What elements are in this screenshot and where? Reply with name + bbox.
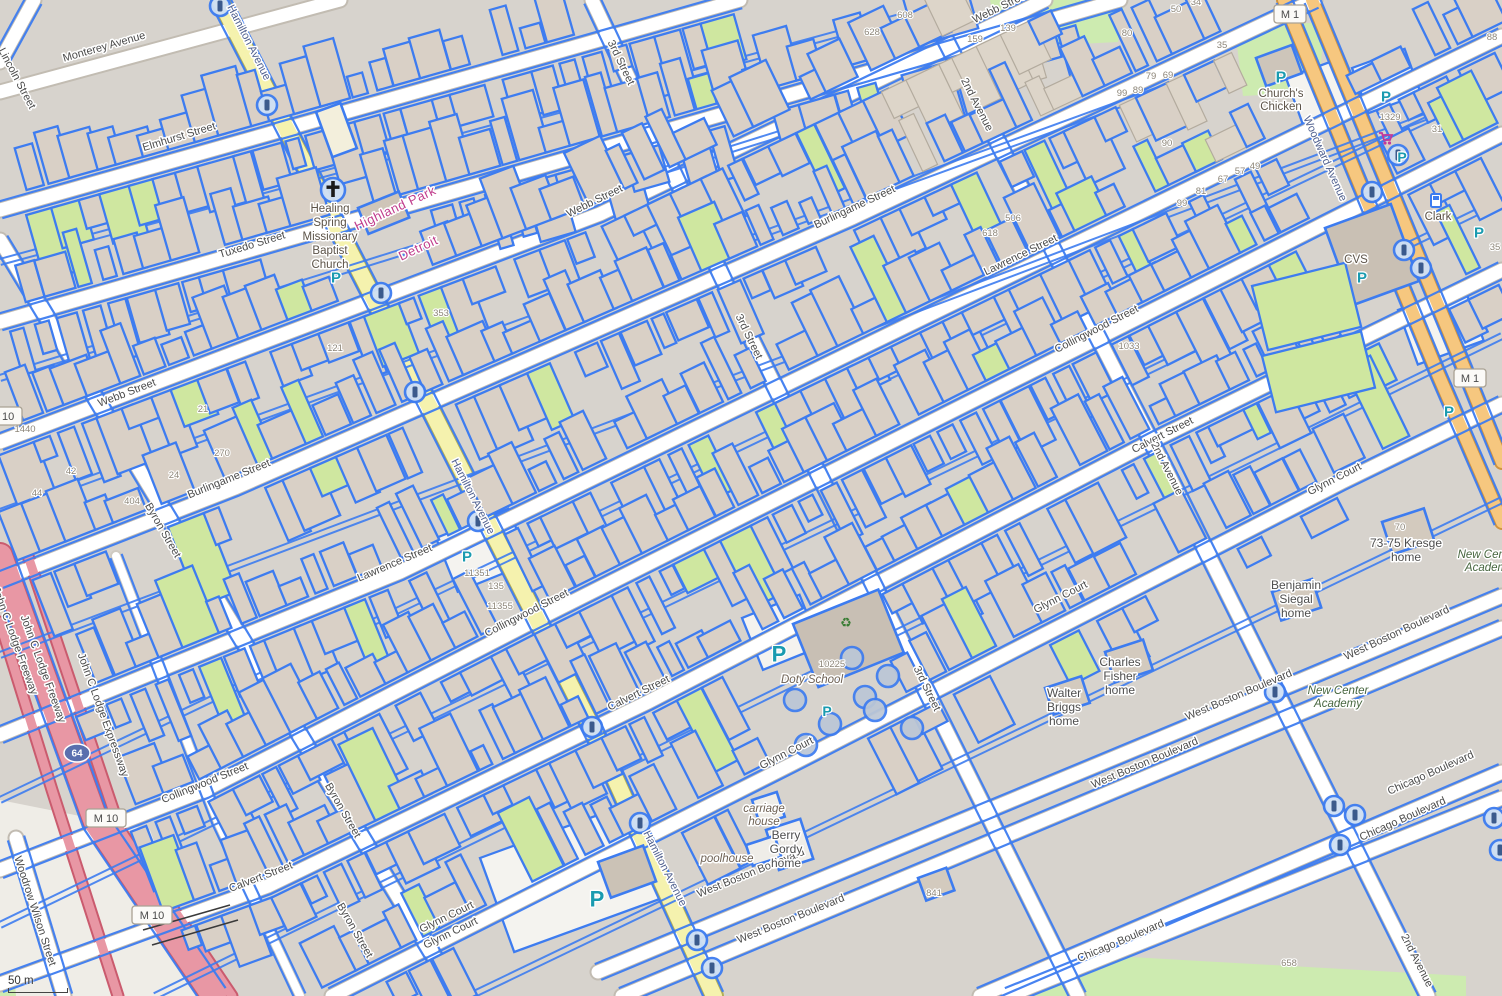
traffic-signal-icon[interactable] xyxy=(1362,182,1382,202)
route-shield-m1: M 1 xyxy=(1454,369,1486,387)
poi-label-poolhouse: poolhouse xyxy=(699,853,753,865)
housenumber: 10225 xyxy=(819,659,845,670)
badge-text: 64 xyxy=(71,749,83,760)
housenumber: 67 xyxy=(1218,174,1229,185)
traffic-signal-icon[interactable] xyxy=(582,717,602,737)
parking-icon[interactable]: P xyxy=(462,548,472,565)
map-canvas[interactable]: ♻PPPPPPPPPPPMonterey AvenueLincoln Stree… xyxy=(0,0,1502,996)
housenumber: 506 xyxy=(1005,213,1021,224)
tree-icon[interactable] xyxy=(901,717,923,739)
tree-icon[interactable] xyxy=(864,699,886,721)
poi-label-healing-spring-missionary-baptist-church: Baptist xyxy=(312,245,348,257)
housenumber: 24 xyxy=(169,470,180,481)
tree-icon[interactable] xyxy=(877,665,899,687)
signal-glyph xyxy=(710,963,715,974)
housenumber: 42 xyxy=(66,466,77,477)
poi-label-73-75-kresge-home: 73-75 Kresge xyxy=(1370,536,1442,550)
housenumber: 270 xyxy=(214,448,230,459)
poi-label-carriage-house: carriage xyxy=(743,803,785,815)
signal-glyph xyxy=(695,935,700,946)
fuel-icon[interactable] xyxy=(1431,194,1441,207)
housenumber: 49 xyxy=(1250,161,1261,172)
scale-line xyxy=(8,988,68,993)
route-shield-m10: M 10 xyxy=(86,809,126,827)
housenumber: 99 xyxy=(1117,88,1128,99)
traffic-signal-icon[interactable] xyxy=(371,283,391,303)
traffic-signal-icon[interactable] xyxy=(1345,805,1365,825)
housenumber: 89 xyxy=(1133,85,1144,96)
housenumber: 34 xyxy=(1191,0,1202,8)
housenumber: 404 xyxy=(124,496,140,507)
recycle-icon[interactable]: ♻ xyxy=(840,615,852,630)
parking-icon[interactable]: P xyxy=(822,703,831,719)
poi-label-cvs: CVS xyxy=(1344,254,1368,266)
traffic-signal-icon[interactable] xyxy=(257,95,277,115)
tree-icon[interactable] xyxy=(784,689,806,711)
traffic-signal-icon[interactable] xyxy=(1324,796,1344,816)
parking-icon[interactable]: P xyxy=(1357,269,1367,286)
housenumber: 1329 xyxy=(1379,112,1400,123)
traffic-signal-icon[interactable] xyxy=(702,958,722,978)
shield-text: M 10 xyxy=(0,411,14,423)
route-shield-m10: M 10 xyxy=(132,906,172,924)
exit-badge-64: 64 xyxy=(64,744,90,762)
poi-label-charles-fisher-home: Charles xyxy=(1099,655,1140,669)
housenumber: 88 xyxy=(1487,32,1498,43)
parking-icon[interactable]: P xyxy=(331,269,341,286)
traffic-signal-icon[interactable] xyxy=(1394,240,1414,260)
route-shield-m1: M 1 xyxy=(1274,5,1306,23)
housenumber: 608 xyxy=(897,10,913,21)
scale-bar: 50 m xyxy=(8,975,68,993)
poi-label-healing-spring-missionary-baptist-church: Church xyxy=(311,259,348,271)
poi-label-healing-spring-missionary-baptist-church: Healing xyxy=(311,203,350,215)
signal-glyph xyxy=(1419,263,1424,274)
housenumber: 31 xyxy=(1432,124,1443,135)
route-shield-m10: M 10 xyxy=(0,407,22,425)
housenumber: 618 xyxy=(982,228,998,239)
poi-label-benjamin-siegal-home: Siegal xyxy=(1279,592,1312,606)
poi-label-benjamin-siegal-home: home xyxy=(1281,606,1311,620)
cross-vertical xyxy=(331,181,335,197)
housenumber: 159 xyxy=(967,34,983,45)
signal-glyph xyxy=(1338,840,1343,851)
traffic-signal-icon[interactable] xyxy=(1490,840,1502,860)
shield-text: M 10 xyxy=(94,813,118,825)
poi-label-clark: Clark xyxy=(1425,211,1452,223)
traffic-signal-icon[interactable] xyxy=(1411,258,1431,278)
poi-label-new-cente-academ: New Cente xyxy=(1458,549,1502,561)
poi-label-walter-briggs-home: Walter xyxy=(1047,686,1081,700)
signal-glyph xyxy=(590,722,595,733)
cart-wheel xyxy=(1388,141,1391,144)
housenumber: 121 xyxy=(327,343,343,354)
poi-label-new-cente-academ: Academ xyxy=(1464,562,1502,574)
map-viewport[interactable]: ♻PPPPPPPPPPPMonterey AvenueLincoln Stree… xyxy=(0,0,1502,996)
poi-label-berry-gordy-home: home xyxy=(771,856,801,870)
signal-glyph xyxy=(1492,813,1497,824)
housenumber: 69 xyxy=(1163,70,1174,81)
parking-icon[interactable]: P xyxy=(1276,70,1287,87)
scale-label: 50 m xyxy=(8,975,34,987)
signal-glyph xyxy=(1370,187,1375,198)
signal-glyph xyxy=(413,387,418,398)
housenumber: 50 xyxy=(1171,4,1182,15)
housenumber: 658 xyxy=(1281,958,1297,969)
traffic-signal-icon[interactable] xyxy=(1330,835,1350,855)
traffic-signal-icon[interactable] xyxy=(405,382,425,402)
housenumber: 44 xyxy=(32,488,43,499)
fuel-pump-window xyxy=(1433,196,1439,200)
poi-label-healing-spring-missionary-baptist-church: Missionary xyxy=(303,231,358,243)
poi-label-charles-fisher-home: Fisher xyxy=(1103,669,1136,683)
poi-label-church-s-chicken: Church's xyxy=(1258,88,1303,100)
parking-icon[interactable]: P xyxy=(1397,149,1406,165)
cross-horizontal xyxy=(327,186,340,189)
signal-glyph xyxy=(218,1,223,12)
parking-icon[interactable]: P xyxy=(1381,88,1391,105)
recycle-glyph: ♻ xyxy=(840,615,852,630)
shield-text: M 10 xyxy=(140,910,164,922)
signal-glyph xyxy=(265,100,270,111)
poi-label-new-center-academy: Academy xyxy=(1313,698,1363,710)
signal-glyph xyxy=(1402,245,1407,256)
housenumber: 81 xyxy=(1196,186,1207,197)
housenumber: 80 xyxy=(1122,28,1133,39)
signal-glyph xyxy=(1273,687,1278,698)
signal-glyph xyxy=(1353,810,1358,821)
poi-label-berry-gordy-home: Gordy xyxy=(770,842,803,856)
poi-label-berry-gordy-home: Berry xyxy=(772,828,801,842)
housenumber: 11355 xyxy=(487,601,513,612)
poi-label-benjamin-siegal-home: Benjamin xyxy=(1271,578,1321,592)
housenumber: 21 xyxy=(198,404,209,415)
poi-label-new-center-academy: New Center xyxy=(1308,685,1370,697)
housenumber: 841 xyxy=(926,888,942,899)
poi-label-73-75-kresge-home: home xyxy=(1391,550,1421,564)
fuel-pump-body xyxy=(1431,194,1441,207)
housenumber: 35 xyxy=(1217,40,1228,51)
cart-wheel xyxy=(1383,141,1386,144)
signal-glyph xyxy=(638,818,643,829)
housenumber: 1033 xyxy=(1118,341,1139,352)
housenumber: 99 xyxy=(1177,198,1188,209)
housenumber: 135 xyxy=(488,581,504,592)
signal-glyph xyxy=(379,288,384,299)
poi-label-walter-briggs-home: Briggs xyxy=(1047,700,1081,714)
traffic-signal-icon[interactable] xyxy=(1484,808,1502,828)
shield-text: M 1 xyxy=(1461,373,1479,385)
poi-label-carriage-house: house xyxy=(748,816,779,828)
housenumber: 628 xyxy=(864,27,880,38)
signal-glyph xyxy=(1332,801,1337,812)
housenumber: 57 xyxy=(1235,166,1246,177)
housenumber: 35 xyxy=(1490,242,1501,253)
parking-icon[interactable]: P xyxy=(772,642,787,667)
signal-glyph xyxy=(1498,845,1502,856)
shield-text: M 1 xyxy=(1281,9,1299,21)
housenumber: 90 xyxy=(1162,138,1173,149)
housenumber: 79 xyxy=(1146,71,1157,82)
housenumber: 139 xyxy=(1000,23,1016,34)
church-icon[interactable] xyxy=(321,178,345,202)
parking-icon[interactable]: P xyxy=(1444,403,1454,420)
parking-icon[interactable]: P xyxy=(1474,224,1484,241)
poi-label-healing-spring-missionary-baptist-church: Spring xyxy=(313,217,346,229)
poi-label-charles-fisher-home: home xyxy=(1105,683,1135,697)
parking-icon[interactable]: P xyxy=(590,887,605,912)
housenumber: 11351 xyxy=(464,568,490,579)
poi-label-church-s-chicken: Chicken xyxy=(1260,101,1302,113)
housenumber: 70 xyxy=(1395,522,1406,533)
traffic-signal-icon[interactable] xyxy=(687,930,707,950)
poi-label-doty-school: Doty School xyxy=(781,674,843,686)
poi-label-walter-briggs-home: home xyxy=(1049,714,1079,728)
housenumber: 353 xyxy=(433,308,449,319)
